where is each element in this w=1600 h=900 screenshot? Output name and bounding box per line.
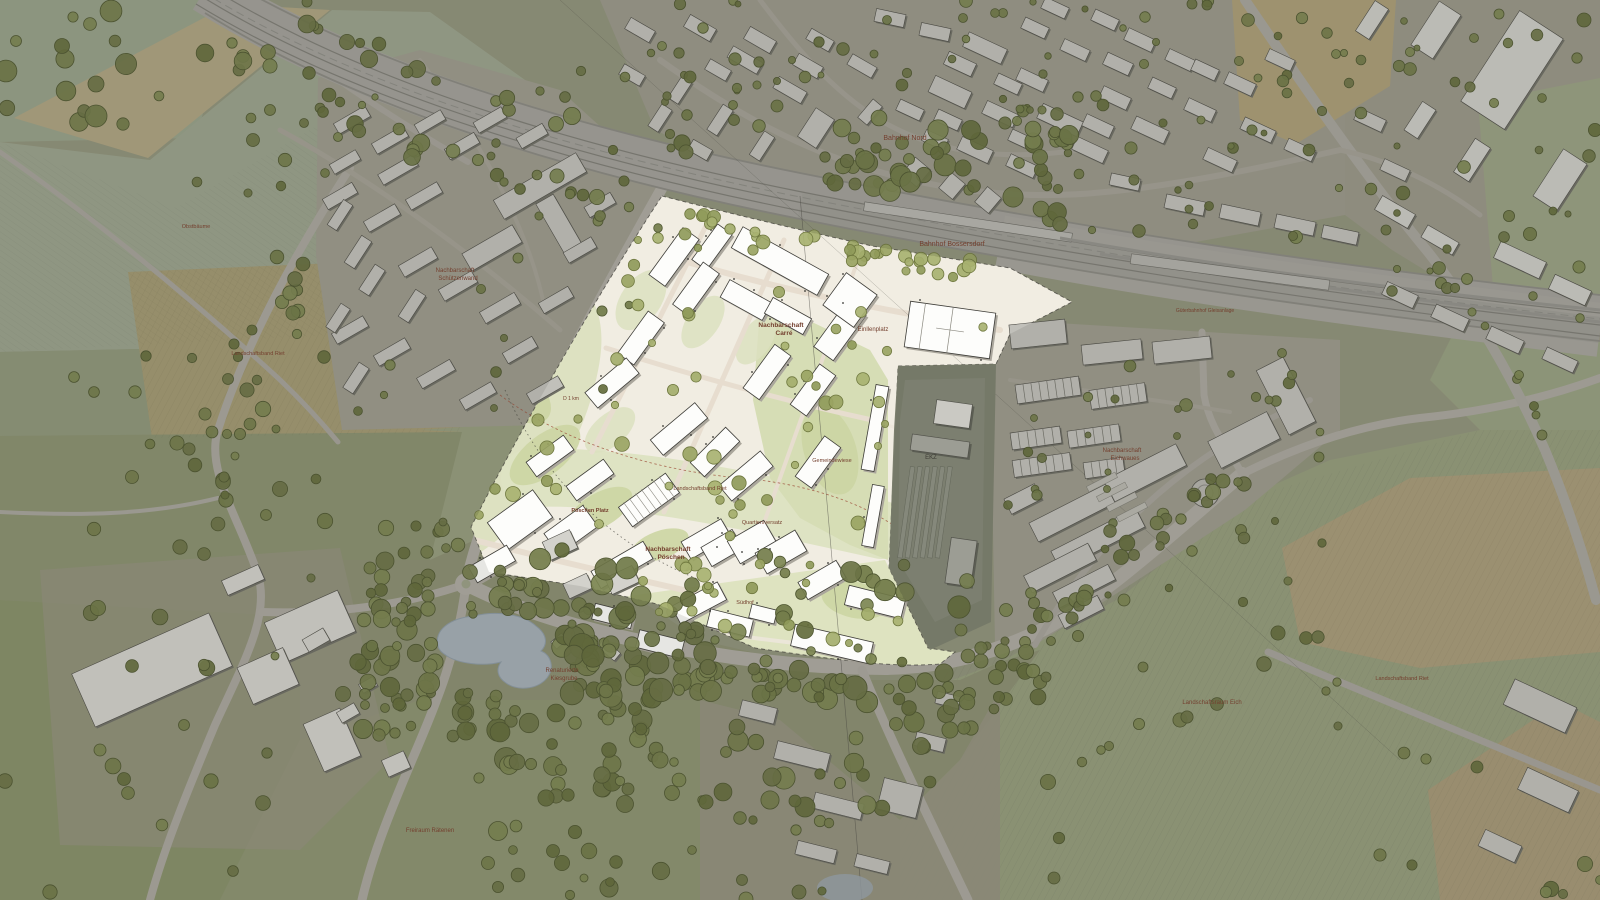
svg-text:Pöschen Platz: Pöschen Platz (571, 508, 609, 514)
svg-text:Freiraum Rätenen: Freiraum Rätenen (406, 828, 454, 834)
svg-text:Landschaftsband Riet: Landschaftsband Riet (673, 486, 727, 492)
svg-text:Pöschen: Pöschen (657, 554, 684, 561)
svg-text:Kiesgrube: Kiesgrube (550, 676, 578, 682)
svg-text:Bahnhof Bossersdorf: Bahnhof Bossersdorf (919, 241, 984, 248)
svg-text:Einllenplatz: Einllenplatz (858, 327, 889, 333)
svg-text:Nachbarschaft: Nachbarschaft (436, 268, 475, 274)
svg-text:Bahnhof Nord: Bahnhof Nord (883, 135, 926, 142)
svg-text:Gemeindewiese: Gemeindewiese (812, 458, 851, 464)
svg-text:Carré: Carré (776, 330, 793, 337)
svg-text:Schützenwand: Schützenwand (438, 276, 477, 282)
svg-text:Nachbarschaft: Nachbarschaft (758, 322, 804, 329)
svg-text:Obstbäume: Obstbäume (182, 224, 210, 230)
svg-text:D 1 km: D 1 km (563, 396, 579, 402)
svg-text:EKZ: EKZ (925, 455, 937, 461)
svg-text:Landschaftsband Riet: Landschaftsband Riet (231, 351, 285, 357)
svg-text:Eichwaues: Eichwaues (1110, 456, 1139, 462)
svg-text:Landschaftsband Riet: Landschaftsband Riet (1375, 676, 1429, 682)
svg-text:Quartiersversatz: Quartiersversatz (742, 520, 783, 526)
svg-text:Renaturierte: Renaturierte (545, 668, 579, 674)
svg-text:Südhof: Südhof (736, 600, 754, 606)
svg-text:Nachbarschaft: Nachbarschaft (1103, 448, 1142, 454)
svg-text:Landschaftsraum Eich: Landschaftsraum Eich (1182, 700, 1241, 706)
svg-text:Güterbahnhof Gleisanlage: Güterbahnhof Gleisanlage (1176, 308, 1235, 314)
svg-text:Nachbarschaft: Nachbarschaft (645, 546, 691, 553)
